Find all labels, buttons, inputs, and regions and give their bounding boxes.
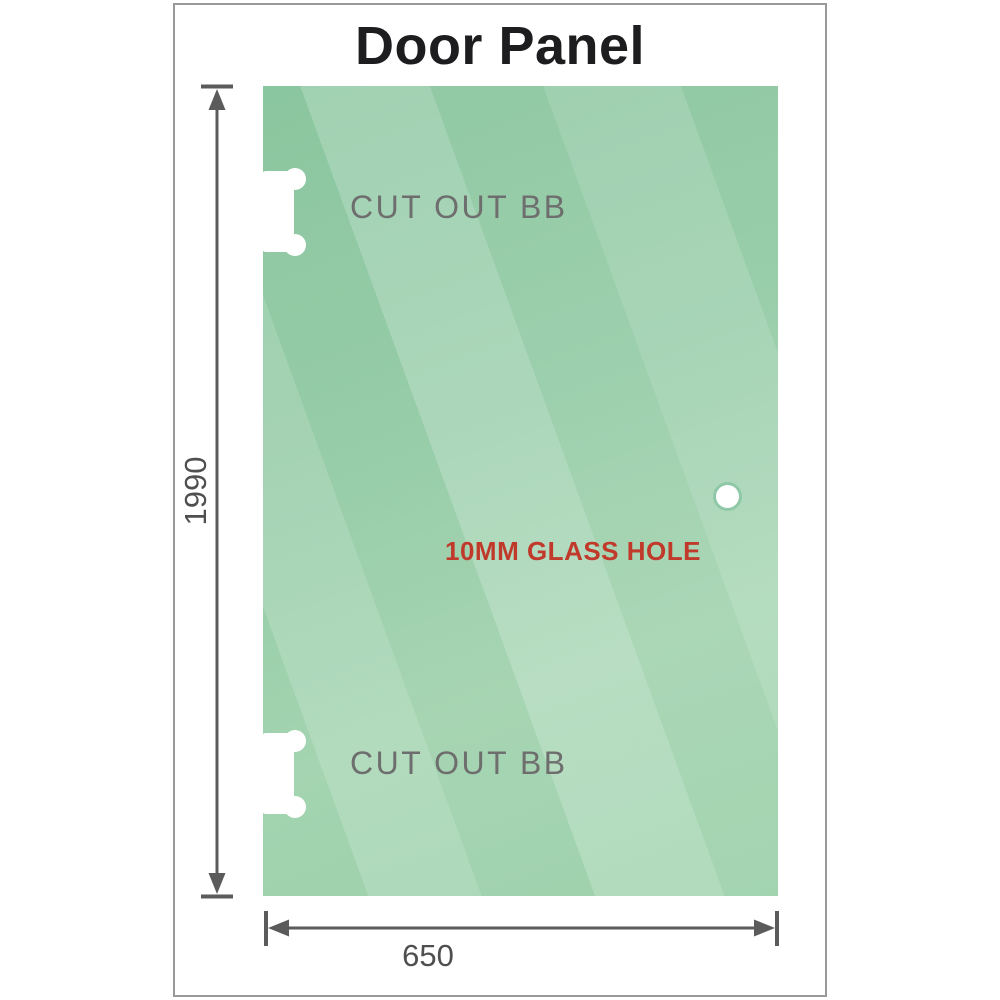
diagram-canvas: Door Panel CUT OUT BB CUT OUT BB 10MM GL… [0, 0, 1000, 1000]
hinge-cutout-top-icon [263, 166, 311, 260]
glass-hole-label: 10MM GLASS HOLE [423, 536, 723, 567]
width-dimension-label: 650 [402, 938, 454, 974]
glass-hole-icon [716, 485, 739, 508]
cutout-top-label: CUT OUT BB [350, 190, 568, 224]
hinge-cutout-bottom-icon [263, 728, 311, 822]
page-title: Door Panel [173, 16, 827, 76]
cutout-bottom-label: CUT OUT BB [350, 746, 568, 780]
height-dimension-label: 1990 [178, 457, 214, 526]
glass-panel: CUT OUT BB CUT OUT BB 10MM GLASS HOLE [263, 86, 778, 896]
